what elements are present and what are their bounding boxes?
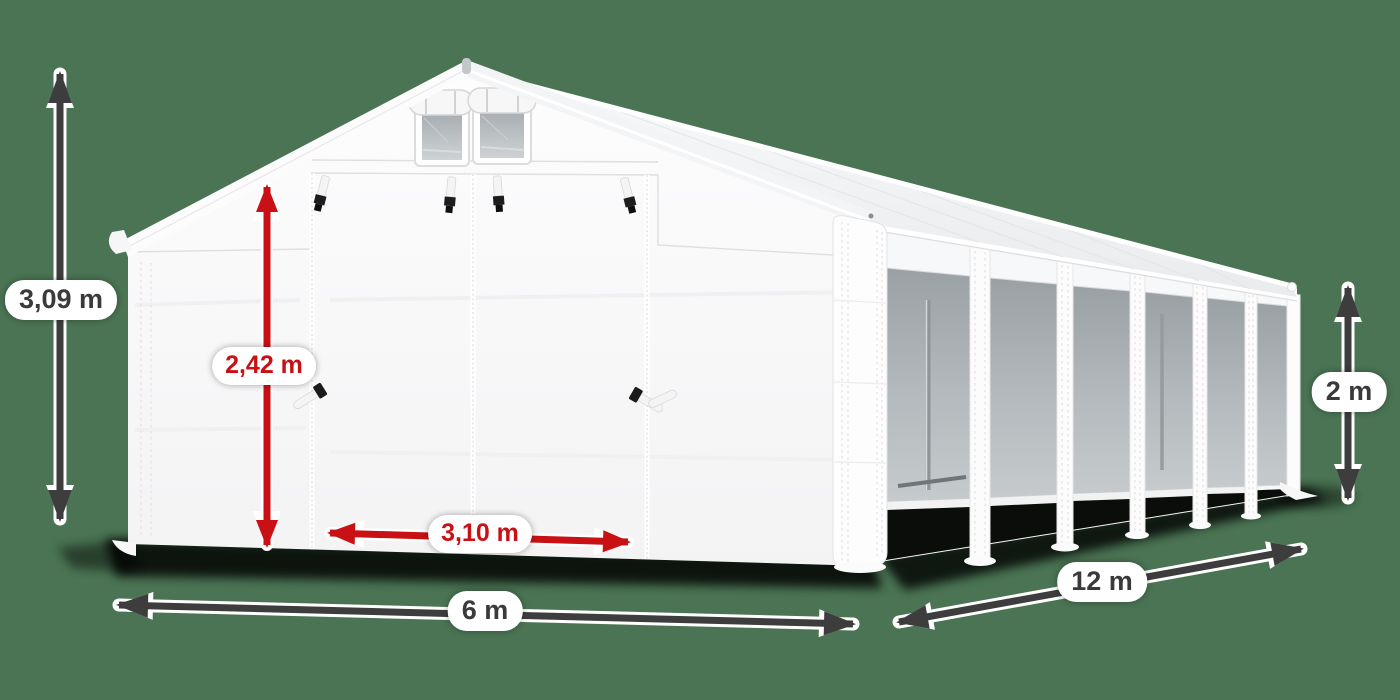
side-window-3: [1073, 286, 1130, 494]
dim-label-front-width: 6 m: [448, 591, 523, 631]
side-window-6: [1257, 303, 1287, 486]
tent-front-face: [109, 58, 874, 566]
tent-illustration: [0, 0, 1400, 700]
gable-vent-right: [468, 88, 536, 164]
side-windows: [887, 268, 1287, 510]
side-window-4: [1145, 292, 1193, 491]
side-window-2: [990, 278, 1057, 498]
dim-label-total-height: 3,09 m: [5, 280, 117, 320]
peak-finial: [462, 58, 471, 74]
dim-label-door-height: 2,42 m: [212, 347, 316, 385]
dim-label-door-width: 3,10 m: [428, 515, 532, 553]
side-window-5: [1207, 298, 1245, 488]
corner-post: [833, 216, 887, 573]
gable-vents: [409, 88, 536, 166]
dim-label-side-length: 12 m: [1057, 562, 1147, 602]
dim-label-side-height: 2 m: [1312, 372, 1387, 412]
side-wall: [865, 214, 1318, 566]
product-scene: 3,09 m 2,42 m 3,10 m 6 m 12 m 2 m: [0, 0, 1400, 700]
